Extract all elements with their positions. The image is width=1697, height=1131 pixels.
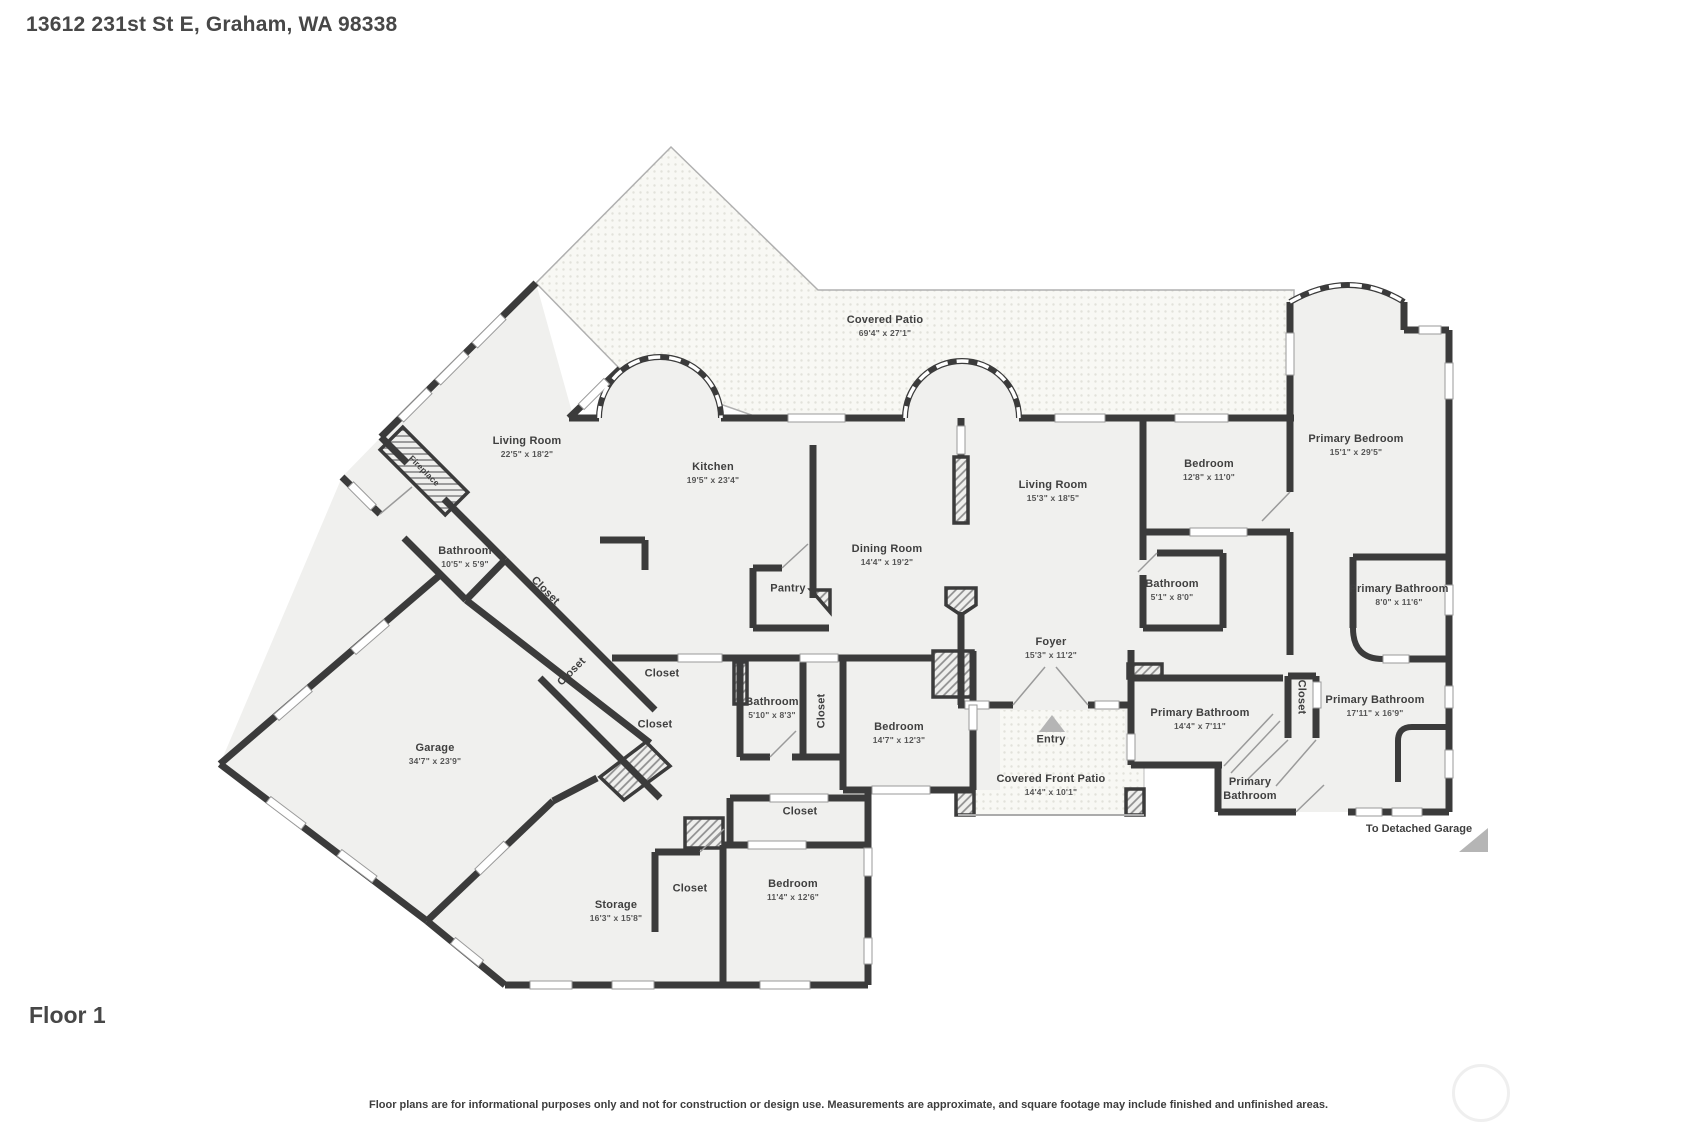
room-name: Bathroom	[745, 696, 799, 709]
room-dimensions: 16'3" x 15'8"	[590, 912, 643, 925]
room-dimensions: 14'4" x 7'11"	[1150, 720, 1249, 733]
room-label-living-room-right: Living Room15'3" x 18'5"	[1019, 479, 1088, 505]
room-name: Bedroom	[873, 721, 926, 734]
room-name: Bathroom	[1145, 578, 1199, 591]
room-dimensions: 5'10" x 8'3"	[745, 709, 799, 722]
room-label-closet-6: Closet	[1295, 680, 1308, 715]
room-label-covered-front-patio: Covered Front Patio14'4" x 10'1"	[997, 773, 1106, 799]
room-label-primary-bedroom: Primary Bedroom15'1" x 29'5"	[1308, 433, 1403, 459]
room-name: Living Room	[493, 435, 562, 448]
room-name: Bedroom	[1183, 458, 1235, 471]
room-dimensions: 8'0" x 11'6"	[1349, 596, 1448, 609]
room-dimensions: 34'7" x 23'9"	[409, 755, 462, 768]
room-name: Living Room	[1019, 479, 1088, 492]
room-name: Bedroom	[767, 878, 819, 891]
room-dimensions: 11'4" x 12'6"	[767, 891, 819, 904]
room-label-primary-bathroom-2: Primary Bathroom17'11" x 16'9"	[1325, 694, 1424, 720]
room-label-living-room-left: Living Room22'5" x 18'2"	[493, 435, 562, 461]
patio-post-right	[1126, 789, 1144, 815]
room-label-closet-7: Closet	[783, 806, 818, 819]
disclaimer-text: Floor plans are for informational purpos…	[0, 1099, 1697, 1111]
room-label-pantry: Pantry	[770, 583, 805, 596]
room-name: Covered Patio	[847, 314, 924, 327]
room-label-primary-bathroom-4: Primary Bathroom	[1215, 775, 1285, 803]
floorplan-drawing	[0, 0, 1697, 1131]
room-label-kitchen: Kitchen19'5" x 23'4"	[687, 461, 740, 487]
room-label-storage: Storage16'3" x 15'8"	[590, 899, 643, 925]
to-detached-garage-label: To Detached Garage	[1366, 823, 1472, 835]
room-label-bathroom-left: Bathroom10'5" x 5'9"	[438, 545, 492, 571]
room-name: Garage	[409, 742, 462, 755]
room-dimensions: 15'3" x 18'5"	[1019, 492, 1088, 505]
room-label-closet-3: Closet	[645, 668, 680, 681]
floor-title: Floor 1	[29, 1002, 106, 1029]
room-dimensions: 19'5" x 23'4"	[687, 474, 740, 487]
room-dimensions: 15'3" x 11'2"	[1025, 649, 1077, 662]
room-name: Primary Bedroom	[1308, 433, 1403, 446]
room-label-dining-room: Dining Room14'4" x 19'2"	[852, 543, 923, 569]
room-name: Primary Bathroom	[1215, 775, 1285, 803]
room-name: Kitchen	[687, 461, 740, 474]
room-label-bathroom-2: Bathroom5'1" x 8'0"	[1145, 578, 1199, 604]
room-name: Closet	[1295, 680, 1308, 715]
room-label-closet-8: Closet	[673, 883, 708, 896]
room-name: Foyer	[1025, 636, 1077, 649]
room-dimensions: 12'8" x 11'0"	[1183, 471, 1235, 484]
room-dimensions: 15'1" x 29'5"	[1308, 446, 1403, 459]
room-dimensions: 5'1" x 8'0"	[1145, 591, 1199, 604]
room-name: Closet	[645, 668, 680, 681]
room-label-closet-5: Closet	[816, 694, 829, 729]
room-label-closet-4: Closet	[638, 719, 673, 732]
room-name: Closet	[783, 806, 818, 819]
room-dimensions: 17'11" x 16'9"	[1325, 707, 1424, 720]
room-label-entry: Entry	[1036, 734, 1065, 747]
room-name: Storage	[590, 899, 643, 912]
room-dimensions: 14'7" x 12'3"	[873, 734, 926, 747]
room-label-bedroom-1: Bedroom12'8" x 11'0"	[1183, 458, 1235, 484]
room-name: Pantry	[770, 583, 805, 596]
floorplan-page: 13612 231st St E, Graham, WA 98338	[0, 0, 1697, 1131]
room-dimensions: 14'4" x 10'1"	[997, 786, 1106, 799]
room-name: Entry	[1036, 734, 1065, 747]
room-name: Primary Bathroom	[1325, 694, 1424, 707]
room-name: Closet	[673, 883, 708, 896]
room-name: Primary Bathroom	[1150, 707, 1249, 720]
room-label-bathroom-3: Bathroom5'10" x 8'3"	[745, 696, 799, 722]
room-dimensions: 69'4" x 27'1"	[847, 327, 924, 340]
room-name: Dining Room	[852, 543, 923, 556]
room-label-bedroom-3: Bedroom11'4" x 12'6"	[767, 878, 819, 904]
room-name: Covered Front Patio	[997, 773, 1106, 786]
room-label-bedroom-2: Bedroom14'7" x 12'3"	[873, 721, 926, 747]
room-label-garage: Garage34'7" x 23'9"	[409, 742, 462, 768]
room-name: Primary Bathroom	[1349, 583, 1448, 596]
room-dimensions: 14'4" x 19'2"	[852, 556, 923, 569]
room-label-primary-bathroom-3: Primary Bathroom14'4" x 7'11"	[1150, 707, 1249, 733]
room-name: Closet	[638, 719, 673, 732]
room-dimensions: 22'5" x 18'2"	[493, 448, 562, 461]
room-label-covered-patio: Covered Patio69'4" x 27'1"	[847, 314, 924, 340]
room-name: Bathroom	[438, 545, 492, 558]
room-name: Closet	[816, 694, 829, 729]
watermark-logo-circle	[1452, 1064, 1510, 1122]
room-label-primary-bathroom-1: Primary Bathroom8'0" x 11'6"	[1349, 583, 1448, 609]
room-label-foyer: Foyer15'3" x 11'2"	[1025, 636, 1077, 662]
room-dimensions: 10'5" x 5'9"	[438, 558, 492, 571]
